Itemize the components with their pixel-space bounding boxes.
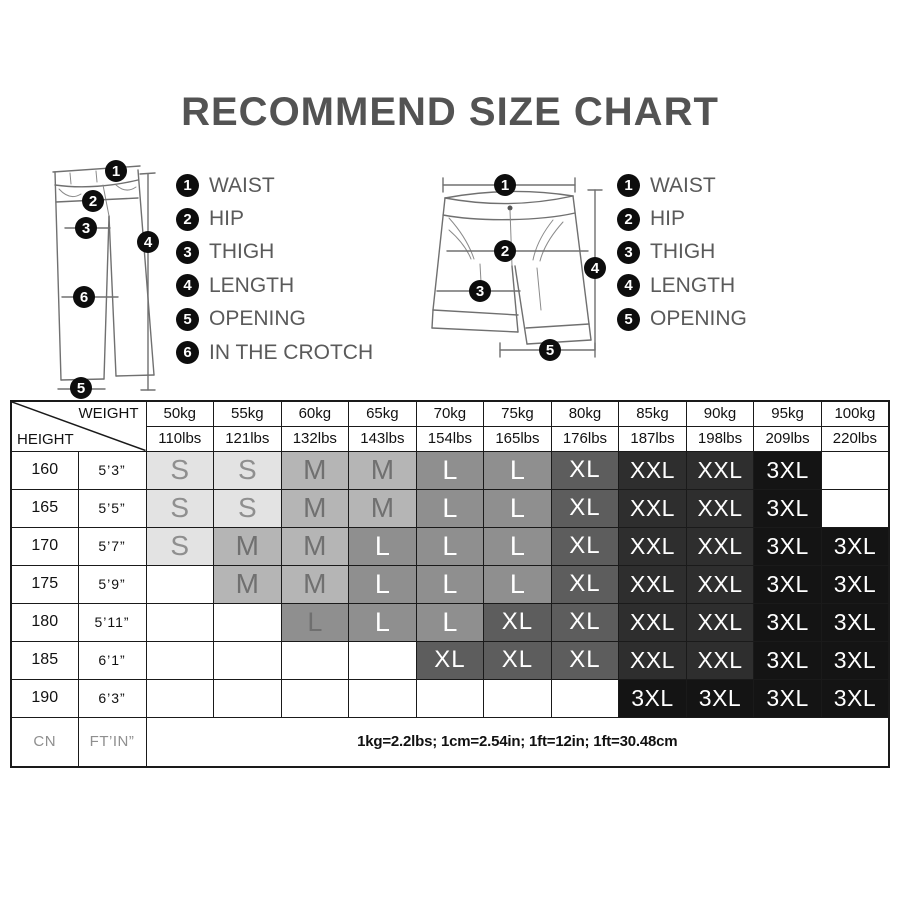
shorts-legend-item-opening: 5OPENING: [617, 303, 747, 336]
pants-legend-item-waist: 1WAIST: [176, 169, 373, 202]
size-cell-m: M: [214, 565, 282, 603]
size-cell-empty: [281, 641, 349, 679]
size-cell-empty: [416, 679, 484, 717]
size-cell-xxl: XXL: [686, 527, 754, 565]
weight-lbs-cell: 121lbs: [214, 426, 282, 451]
weight-lbs-cell: 165lbs: [484, 426, 552, 451]
size-cell-m: M: [281, 565, 349, 603]
size-cell-3xl: 3XL: [754, 527, 822, 565]
height-row-190: 1906’3”3XL3XL3XL3XL: [11, 679, 889, 717]
corner-height-label: HEIGHT: [17, 431, 74, 448]
height-ftin-cell: 5’9”: [78, 565, 146, 603]
legend-label: WAIST: [650, 174, 716, 198]
size-cell-empty: [551, 679, 619, 717]
svg-text:4: 4: [591, 260, 600, 277]
legend-label: IN THE CROTCH: [209, 341, 373, 365]
size-cell-l: L: [416, 603, 484, 641]
height-ftin-cell: 6’3”: [78, 679, 146, 717]
size-cell-s: S: [214, 489, 282, 527]
shorts-marker-thigh: 3: [469, 280, 491, 302]
legend-number-badge: 6: [176, 341, 199, 364]
size-cell-xl: XL: [551, 451, 619, 489]
size-cell-empty: [281, 679, 349, 717]
weight-kg-row: WEIGHT HEIGHT 50kg55kg60kg65kg70kg75kg80…: [11, 401, 889, 426]
pants-marker-crotch: 6: [73, 286, 95, 308]
legend-label: LENGTH: [650, 274, 735, 298]
size-cell-3xl: 3XL: [754, 489, 822, 527]
pants-marker-thigh: 3: [75, 217, 97, 239]
size-cell-xl: XL: [551, 527, 619, 565]
weight-kg-cell: 95kg: [754, 401, 822, 426]
weight-lbs-cell: 143lbs: [349, 426, 417, 451]
size-cell-m: M: [281, 489, 349, 527]
size-cell-xxl: XXL: [686, 451, 754, 489]
legend-number-badge: 3: [176, 241, 199, 264]
size-table: WEIGHT HEIGHT 50kg55kg60kg65kg70kg75kg80…: [10, 400, 890, 768]
legend-number-badge: 4: [617, 274, 640, 297]
shorts-marker-hip: 2: [494, 240, 516, 262]
weight-lbs-cell: 209lbs: [754, 426, 822, 451]
size-cell-3xl: 3XL: [821, 527, 889, 565]
pants-legend-item-hip: 2HIP: [176, 202, 373, 235]
size-cell-empty: [146, 679, 214, 717]
size-cell-xxl: XXL: [619, 565, 687, 603]
shorts-marker-opening: 5: [539, 339, 561, 361]
shorts-legend-item-waist: 1WAIST: [617, 169, 747, 202]
pants-legend-item-in-the-crotch: 6IN THE CROTCH: [176, 336, 373, 369]
size-cell-xl: XL: [416, 641, 484, 679]
shorts-legend-item-thigh: 3THIGH: [617, 236, 747, 269]
weight-lbs-cell: 220lbs: [821, 426, 889, 451]
pants-marker-waist: 1: [105, 160, 127, 182]
svg-text:5: 5: [546, 342, 554, 359]
size-cell-m: M: [281, 451, 349, 489]
weight-height-corner-cell: WEIGHT HEIGHT: [11, 401, 146, 451]
height-row-175: 1755’9”MMLLLXLXXLXXL3XL3XL: [11, 565, 889, 603]
size-cell-xxl: XXL: [686, 565, 754, 603]
height-cm-cell: 185: [11, 641, 78, 679]
size-cell-xl: XL: [484, 641, 552, 679]
svg-text:6: 6: [80, 289, 88, 306]
size-cell-xxl: XXL: [686, 603, 754, 641]
corner-weight-label: WEIGHT: [79, 405, 139, 422]
legend-number-badge: 5: [617, 308, 640, 331]
size-cell-3xl: 3XL: [686, 679, 754, 717]
size-cell-xxl: XXL: [686, 489, 754, 527]
height-row-185: 1856’1”XLXLXLXXLXXL3XL3XL: [11, 641, 889, 679]
size-cell-3xl: 3XL: [754, 679, 822, 717]
weight-kg-cell: 75kg: [484, 401, 552, 426]
size-cell-3xl: 3XL: [821, 641, 889, 679]
size-cell-s: S: [146, 451, 214, 489]
legend-label: THIGH: [209, 240, 274, 264]
legend-number-badge: 5: [176, 308, 199, 331]
height-ftin-cell: 6’1”: [78, 641, 146, 679]
pants-diagram: 1 2 3 4 6 5: [48, 158, 178, 403]
weight-lbs-cell: 110lbs: [146, 426, 214, 451]
size-cell-3xl: 3XL: [754, 603, 822, 641]
legend-label: LENGTH: [209, 274, 294, 298]
height-ftin-cell: 5’11”: [78, 603, 146, 641]
size-cell-empty: [349, 679, 417, 717]
size-cell-empty: [484, 679, 552, 717]
shorts-legend-item-length: 4LENGTH: [617, 269, 747, 302]
legend-label: HIP: [650, 207, 685, 231]
conversion-note: 1kg=2.2lbs; 1cm=2.54in; 1ft=12in; 1ft=30…: [146, 717, 889, 767]
footer-ftin-label: FT’IN”: [78, 717, 146, 767]
height-ftin-cell: 5’3”: [78, 451, 146, 489]
shorts-diagram: 1 2 3 4 5: [425, 158, 615, 393]
weight-kg-cell: 50kg: [146, 401, 214, 426]
legend-number-badge: 1: [176, 174, 199, 197]
pants-legend-item-thigh: 3THIGH: [176, 236, 373, 269]
size-cell-l: L: [416, 565, 484, 603]
size-cell-xl: XL: [551, 603, 619, 641]
legend-label: HIP: [209, 207, 244, 231]
size-cell-empty: [146, 565, 214, 603]
size-cell-xl: XL: [551, 489, 619, 527]
size-table-body: 1605’3”SSMMLLXLXXLXXL3XL1655’5”SSMMLLXLX…: [11, 451, 889, 717]
size-cell-xl: XL: [484, 603, 552, 641]
weight-lbs-cell: 187lbs: [619, 426, 687, 451]
pants-legend: 1WAIST2HIP3THIGH4LENGTH5OPENING6IN THE C…: [176, 169, 373, 369]
weight-kg-cell: 70kg: [416, 401, 484, 426]
size-cell-l: L: [484, 527, 552, 565]
size-table-footer: CN FT’IN” 1kg=2.2lbs; 1cm=2.54in; 1ft=12…: [11, 717, 889, 767]
svg-text:5: 5: [77, 380, 85, 397]
pants-legend-item-length: 4LENGTH: [176, 269, 373, 302]
svg-text:3: 3: [82, 220, 90, 237]
height-row-180: 1805’11”LLLXLXLXXLXXL3XL3XL: [11, 603, 889, 641]
svg-text:1: 1: [112, 163, 120, 180]
svg-text:4: 4: [144, 234, 153, 251]
height-cm-cell: 165: [11, 489, 78, 527]
size-cell-l: L: [416, 451, 484, 489]
size-cell-m: M: [349, 451, 417, 489]
size-cell-empty: [821, 489, 889, 527]
weight-lbs-cell: 154lbs: [416, 426, 484, 451]
weight-kg-cell: 60kg: [281, 401, 349, 426]
page-title: RECOMMEND SIZE CHART: [0, 90, 900, 135]
size-cell-3xl: 3XL: [754, 641, 822, 679]
size-cell-3xl: 3XL: [754, 565, 822, 603]
legend-label: WAIST: [209, 174, 275, 198]
weight-kg-cell: 90kg: [686, 401, 754, 426]
size-cell-empty: [146, 603, 214, 641]
size-cell-empty: [214, 641, 282, 679]
pants-marker-length: 4: [137, 231, 159, 253]
shorts-marker-waist: 1: [494, 174, 516, 196]
size-cell-xxl: XXL: [619, 603, 687, 641]
size-cell-3xl: 3XL: [754, 451, 822, 489]
height-row-170: 1705’7”SMMLLLXLXXLXXL3XL3XL: [11, 527, 889, 565]
shorts-marker-length: 4: [584, 257, 606, 279]
legend-number-badge: 2: [176, 208, 199, 231]
height-cm-cell: 190: [11, 679, 78, 717]
size-cell-s: S: [214, 451, 282, 489]
weight-lbs-cell: 198lbs: [686, 426, 754, 451]
size-cell-3xl: 3XL: [821, 565, 889, 603]
size-cell-m: M: [214, 527, 282, 565]
weight-kg-cell: 85kg: [619, 401, 687, 426]
height-ftin-cell: 5’7”: [78, 527, 146, 565]
size-cell-l: L: [484, 565, 552, 603]
size-cell-l: L: [484, 451, 552, 489]
size-cell-empty: [214, 603, 282, 641]
size-cell-xxl: XXL: [619, 489, 687, 527]
size-cell-empty: [146, 641, 214, 679]
size-cell-empty: [214, 679, 282, 717]
footer-cn-label: CN: [11, 717, 78, 767]
size-cell-l: L: [349, 603, 417, 641]
svg-text:1: 1: [501, 177, 509, 194]
legend-label: OPENING: [650, 307, 747, 331]
size-cell-empty: [821, 451, 889, 489]
size-cell-3xl: 3XL: [619, 679, 687, 717]
size-cell-xxl: XXL: [686, 641, 754, 679]
legend-number-badge: 4: [176, 274, 199, 297]
size-cell-l: L: [281, 603, 349, 641]
height-row-160: 1605’3”SSMMLLXLXXLXXL3XL: [11, 451, 889, 489]
pants-marker-opening: 5: [70, 377, 92, 399]
legend-label: THIGH: [650, 240, 715, 264]
svg-text:2: 2: [89, 193, 97, 210]
size-cell-s: S: [146, 527, 214, 565]
weight-kg-cell: 80kg: [551, 401, 619, 426]
height-cm-cell: 160: [11, 451, 78, 489]
size-table-header: WEIGHT HEIGHT 50kg55kg60kg65kg70kg75kg80…: [11, 401, 889, 451]
size-cell-3xl: 3XL: [821, 603, 889, 641]
height-cm-cell: 180: [11, 603, 78, 641]
weight-kg-cell: 55kg: [214, 401, 282, 426]
size-cell-empty: [349, 641, 417, 679]
shorts-legend-item-hip: 2HIP: [617, 202, 747, 235]
svg-text:2: 2: [501, 243, 509, 260]
weight-lbs-cell: 176lbs: [551, 426, 619, 451]
shorts-legend: 1WAIST2HIP3THIGH4LENGTH5OPENING: [617, 169, 747, 336]
weight-lbs-cell: 132lbs: [281, 426, 349, 451]
svg-text:3: 3: [476, 283, 484, 300]
legend-number-badge: 3: [617, 241, 640, 264]
size-cell-xxl: XXL: [619, 451, 687, 489]
size-cell-m: M: [281, 527, 349, 565]
legend-number-badge: 2: [617, 208, 640, 231]
size-cell-xl: XL: [551, 565, 619, 603]
pants-marker-hip: 2: [82, 190, 104, 212]
size-cell-xxl: XXL: [619, 527, 687, 565]
size-cell-xl: XL: [551, 641, 619, 679]
pants-legend-item-opening: 5OPENING: [176, 303, 373, 336]
size-cell-s: S: [146, 489, 214, 527]
size-cell-l: L: [349, 565, 417, 603]
legend-number-badge: 1: [617, 174, 640, 197]
height-cm-cell: 175: [11, 565, 78, 603]
height-cm-cell: 170: [11, 527, 78, 565]
size-cell-3xl: 3XL: [821, 679, 889, 717]
size-cell-l: L: [416, 489, 484, 527]
size-cell-l: L: [484, 489, 552, 527]
size-cell-m: M: [349, 489, 417, 527]
legend-label: OPENING: [209, 307, 306, 331]
weight-kg-cell: 65kg: [349, 401, 417, 426]
weight-kg-cell: 100kg: [821, 401, 889, 426]
height-row-165: 1655’5”SSMMLLXLXXLXXL3XL: [11, 489, 889, 527]
size-cell-l: L: [416, 527, 484, 565]
size-cell-xxl: XXL: [619, 641, 687, 679]
size-cell-l: L: [349, 527, 417, 565]
height-ftin-cell: 5’5”: [78, 489, 146, 527]
